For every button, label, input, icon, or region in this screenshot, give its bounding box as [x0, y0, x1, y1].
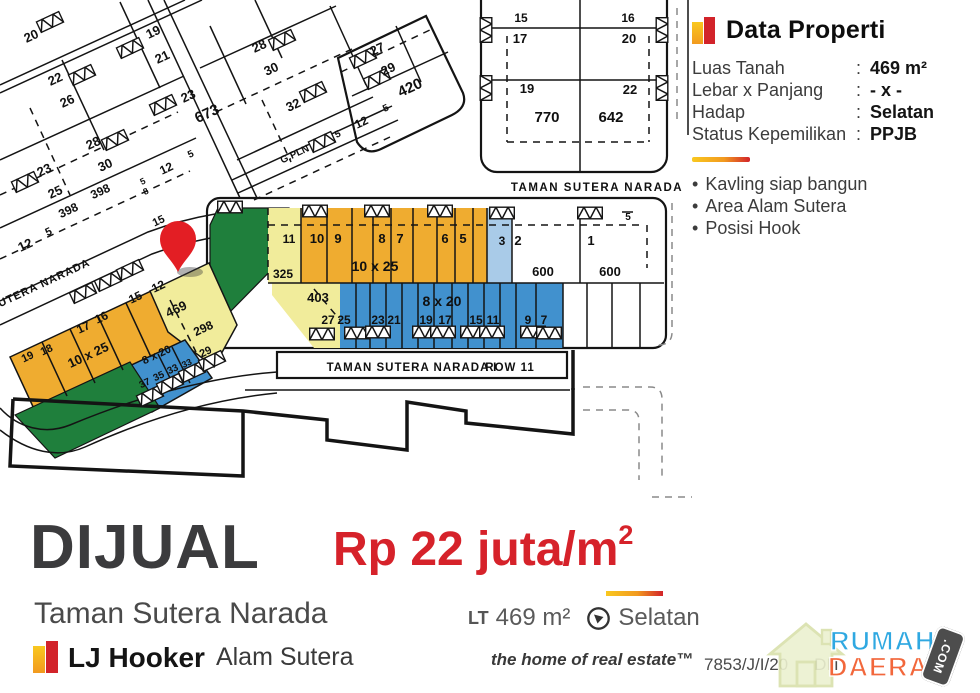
ljhooker-bars-icon	[33, 641, 60, 674]
map-label: 20	[21, 26, 40, 46]
lt-label: LT	[468, 608, 489, 629]
facing-value: Selatan	[618, 604, 699, 632]
map-label: 28	[83, 133, 102, 153]
compass-icon	[586, 606, 611, 631]
map-label: 420	[395, 75, 425, 101]
map-label: 15	[514, 11, 528, 25]
map-label: 19	[419, 313, 433, 327]
map-label: 21	[152, 47, 171, 67]
bullet-icon: •	[692, 218, 698, 238]
map-label: 2	[514, 233, 521, 248]
roof-truss-icon	[218, 201, 243, 213]
map-label: 11	[487, 313, 500, 327]
bullet-icon: •	[692, 174, 698, 194]
spec-label: Lebar x Panjang	[692, 79, 856, 101]
map-label: 7	[396, 231, 403, 246]
agency-office: Alam Sutera	[216, 643, 354, 672]
map-label: 5	[186, 148, 196, 161]
map-label: 22	[623, 82, 637, 97]
spec-value: 469 m²	[870, 57, 927, 79]
roof-truss-icon	[310, 328, 335, 340]
roof-truss-icon	[428, 205, 453, 217]
listing-price: Rp 22 juta/m2	[333, 522, 633, 577]
map-label: 9	[525, 313, 532, 327]
spec-colon: :	[856, 101, 870, 123]
map-label: TAMAN SUTERA NARADA	[511, 182, 683, 194]
map-label: 8 x 20	[423, 293, 462, 309]
map-label: 23	[371, 313, 385, 327]
map-label: 12	[157, 159, 175, 177]
map-label: 5	[459, 231, 466, 246]
roof-truss-icon	[480, 76, 492, 101]
map-label: 32	[283, 95, 302, 115]
map-label: 5	[43, 226, 54, 239]
spec-value: - x -	[870, 79, 902, 101]
map-label: 5	[138, 176, 147, 187]
feature-item: •Area Alam Sutera	[692, 195, 978, 217]
roof-truss-icon	[101, 129, 128, 150]
map-label: 5	[625, 212, 631, 223]
map-label: 398	[56, 200, 80, 221]
map-label: 600	[532, 264, 554, 279]
spec-colon: :	[856, 79, 870, 101]
roof-truss-icon	[431, 326, 456, 338]
feature-text: Posisi Hook	[705, 218, 800, 238]
roof-truss-icon	[656, 18, 668, 43]
map-label: 325	[273, 267, 293, 281]
roof-truss-icon	[366, 326, 391, 338]
roof-truss-icon	[116, 259, 143, 280]
roof-truss-icon	[480, 326, 505, 338]
map-label: 19	[520, 81, 534, 96]
panel-title: Data Properti	[726, 16, 886, 45]
map-label: 16	[621, 11, 635, 25]
spec-value: Selatan	[870, 101, 934, 123]
spec-row-status: Status Kepemilikan : PPJB	[692, 123, 978, 145]
bullet-icon: •	[692, 196, 698, 216]
gradient-divider	[692, 157, 750, 162]
dashed-roads	[583, 387, 692, 497]
map-label: 12	[15, 235, 34, 255]
map-label: 770	[534, 109, 559, 126]
feature-text: Area Alam Sutera	[705, 196, 846, 216]
lt-value: 469 m²	[496, 604, 571, 632]
spec-label: Hadap	[692, 101, 856, 123]
map-label: 398	[88, 181, 112, 202]
roof-truss-icon	[578, 207, 603, 219]
brand-bars-icon	[692, 17, 717, 45]
roof-truss-icon	[303, 205, 328, 217]
map-label: 1	[587, 233, 594, 248]
brand-tagline: the home of real estate™	[491, 650, 693, 670]
map-label: 600	[599, 264, 621, 279]
map-label: 5	[381, 102, 391, 115]
feature-item: •Kavling siap bangun	[692, 173, 978, 195]
map-label: 11	[283, 232, 296, 246]
map-label: 21	[387, 313, 401, 327]
watermark-tag-text: .COM	[930, 637, 955, 675]
roof-truss-icon	[308, 131, 335, 152]
roof-truss-icon	[490, 207, 515, 219]
spec-colon: :	[856, 123, 870, 145]
price-main: Rp 22 juta/m	[333, 523, 618, 576]
map-label: 15	[469, 313, 483, 327]
data-properti-panel: Data Properti Luas Tanah : 469 m² Lebar …	[692, 16, 978, 239]
feature-bullets: •Kavling siap bangun •Area Alam Sutera •…	[692, 173, 978, 239]
roof-truss-icon	[268, 29, 295, 50]
map-label: 23	[178, 86, 197, 106]
map-label: 10	[310, 231, 324, 246]
spec-value: PPJB	[870, 123, 917, 145]
map-label: 642	[598, 109, 623, 126]
price-superscript: 2	[618, 520, 633, 550]
agency-logo: LJ Hooker Alam Sutera	[33, 641, 354, 674]
property-flyer: 201921222623673283032G.PLN28305125823253…	[0, 0, 980, 693]
agency-name: LJ Hooker	[68, 642, 205, 674]
spec-label: Luas Tanah	[692, 57, 856, 79]
roof-truss-icon	[656, 76, 668, 101]
feature-text: Kavling siap bangun	[705, 174, 867, 194]
listing-location: Taman Sutera Narada	[34, 597, 328, 631]
map-label: 403	[307, 290, 329, 305]
roof-truss-icon	[480, 18, 492, 43]
map-label: 17	[438, 313, 452, 327]
map-label: G.PLN	[279, 143, 311, 166]
map-label: TAMAN SUTERA NARADA I	[327, 362, 498, 374]
spec-row-lebar-panjang: Lebar x Panjang : - x -	[692, 79, 978, 101]
map-label: 8	[141, 186, 150, 197]
roof-truss-icon	[299, 81, 326, 102]
map-label: 20	[622, 31, 636, 46]
map-label: 30	[95, 155, 114, 175]
map-label: 3	[499, 234, 506, 248]
map-label: 7	[541, 313, 548, 327]
property-spec-rows: Luas Tanah : 469 m² Lebar x Panjang : - …	[692, 57, 978, 145]
land-size-row: LT 469 m² Selatan	[468, 604, 700, 632]
spec-colon: :	[856, 57, 870, 79]
roof-truss-icon	[116, 37, 143, 58]
map-label: 6	[441, 231, 448, 246]
roof-truss-icon	[537, 327, 562, 339]
map-label: 17	[513, 31, 527, 46]
map-label: 26	[57, 91, 76, 111]
roof-truss-icon	[68, 64, 95, 85]
map-label: 27	[321, 313, 335, 327]
map-label: 22	[45, 69, 64, 89]
map-label: ROW 11	[485, 362, 534, 374]
map-label: 9	[334, 231, 341, 246]
roof-truss-icon	[11, 171, 38, 192]
spec-label: Status Kepemilikan	[692, 123, 856, 145]
listing-status: DIJUAL	[30, 512, 260, 583]
roof-truss-icon	[149, 94, 176, 115]
roof-truss-icon	[36, 11, 63, 32]
map-label: 8	[378, 231, 385, 246]
roof-truss-icon	[365, 205, 390, 217]
location-pin-icon	[160, 221, 203, 277]
feature-item: •Posisi Hook	[692, 217, 978, 239]
map-label: 10 x 25	[352, 258, 399, 274]
map-label: 25	[337, 313, 351, 327]
spec-row-hadap: Hadap : Selatan	[692, 101, 978, 123]
spec-row-luas-tanah: Luas Tanah : 469 m²	[692, 57, 978, 79]
map-label: 30	[261, 59, 280, 79]
price-divider	[606, 591, 663, 596]
map-label: 28	[249, 36, 268, 56]
